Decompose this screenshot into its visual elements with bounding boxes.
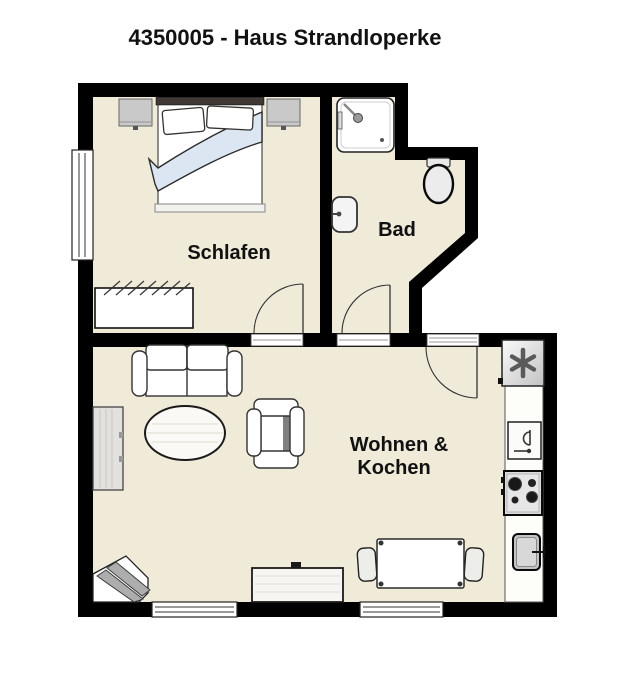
kitchen-line [498, 340, 546, 602]
pillow-right [206, 106, 253, 130]
wash-basin-icon [332, 197, 357, 232]
door-threshold-schlafen [251, 334, 303, 346]
wohnen-kochen-label-line1: Wohnen & [350, 434, 449, 456]
floor-plan-page: 4350005 - Haus Strandloperke [0, 0, 620, 697]
tv-board-icon [252, 562, 343, 602]
armchair-icon [247, 399, 304, 468]
tv-icon [291, 562, 301, 568]
page-title: 4350005 - Haus Strandloperke [128, 25, 441, 50]
sofa-icon [132, 345, 242, 396]
window-bottom-left [152, 602, 237, 617]
chair-right-icon [464, 547, 484, 581]
window-bedroom-left [72, 150, 93, 260]
bad-label: Bad [378, 219, 416, 241]
built-in-appliance-icon [508, 422, 541, 459]
floor-plan-svg: 4350005 - Haus Strandloperke [0, 0, 620, 697]
door-threshold-bad [337, 334, 390, 346]
wohnen-kochen-label-line2: Kochen [357, 457, 430, 479]
double-bed-icon [149, 97, 265, 212]
coffee-table-icon [145, 406, 225, 460]
pillow-left [162, 107, 205, 134]
sideboard-icon [93, 407, 123, 490]
chair-left-icon [357, 547, 377, 581]
window-bottom-right [360, 602, 443, 617]
toilet-icon [424, 158, 453, 203]
stove-icon [501, 471, 542, 515]
schlafen-label: Schlafen [187, 242, 270, 264]
fridge-freezer-icon [498, 340, 544, 386]
shower-icon [337, 98, 394, 152]
nightstand-right-icon [267, 99, 300, 130]
wardrobe-icon [95, 281, 193, 328]
nightstand-left-icon [119, 99, 152, 130]
door-threshold-entrance [427, 334, 479, 346]
